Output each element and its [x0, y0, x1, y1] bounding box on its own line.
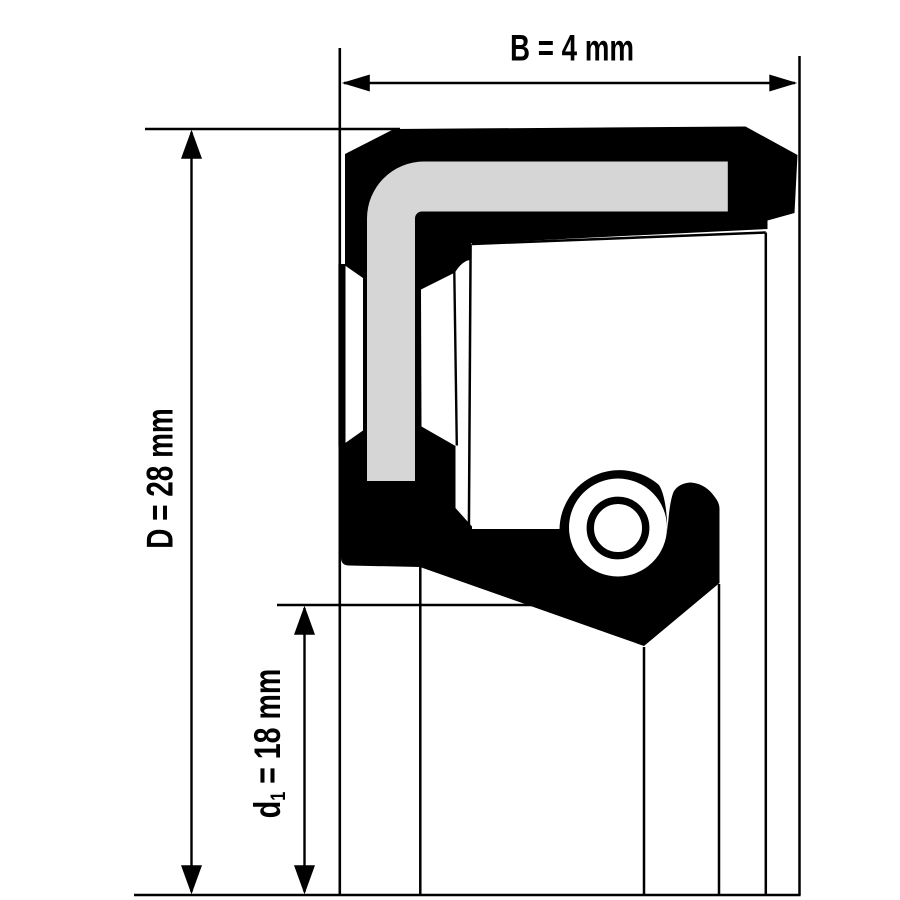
svg-text:D = 28 mm: D = 28 mm	[139, 408, 181, 548]
svg-text:B = 4 mm: B = 4 mm	[510, 27, 634, 69]
